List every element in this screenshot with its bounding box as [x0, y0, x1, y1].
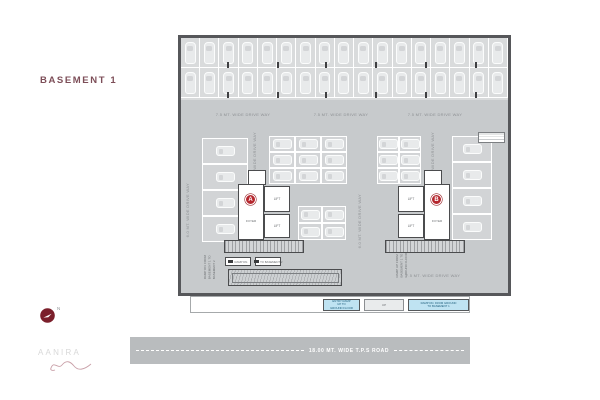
car-icon	[185, 72, 196, 94]
core-b-lift-1: LIFT	[398, 186, 424, 212]
aisle-tick	[325, 62, 327, 68]
ramp-down-strip	[228, 269, 342, 286]
north-arrow-icon	[40, 308, 55, 323]
aisle-tick	[325, 92, 327, 98]
aisle-tick	[425, 92, 427, 98]
car-icon	[338, 42, 349, 64]
core-a-foyer-label: FOYER	[238, 220, 264, 224]
aisle-tick	[475, 92, 477, 98]
car-icon	[396, 72, 407, 94]
page-title: BASEMENT 1	[40, 75, 117, 86]
brand-script-flourish-icon	[48, 358, 94, 372]
car-icon	[325, 210, 344, 220]
parking-row	[181, 38, 508, 68]
exit-ramp-box: RAMP DN. FROM GROUND TO BASEMENT 1	[408, 299, 469, 311]
car-icon	[401, 155, 420, 165]
core-b-foyer-label: FOYER	[424, 220, 450, 224]
car-icon	[435, 72, 446, 94]
car-icon	[463, 144, 482, 154]
ramp-tag: RAMP DN.	[225, 257, 251, 266]
north-label: N	[57, 306, 60, 311]
aisle-tick	[375, 92, 377, 98]
car-icon	[358, 42, 369, 64]
car-icon	[325, 155, 344, 165]
driveway-label: 7.5 MT. WIDE DRIVE WAY	[406, 273, 460, 278]
ramp-note-right: RAMP UP FROM BASEMENT 1 TO GROUND FLOOR	[395, 253, 409, 278]
core-b-foyer	[424, 184, 450, 240]
road-centerline	[394, 350, 464, 351]
parking-cluster	[298, 206, 346, 240]
ramp-mid-box: UP	[364, 299, 404, 311]
car-icon	[473, 72, 484, 94]
car-icon	[415, 72, 426, 94]
car-icon	[273, 139, 292, 149]
car-icon	[273, 171, 292, 181]
car-icon	[319, 42, 330, 64]
entry-apron: ENTRY RAMP UP TO GROUND FLOOR UP RAMP DN…	[190, 296, 470, 313]
car-icon	[492, 42, 503, 64]
parking-cluster	[269, 136, 347, 184]
car-icon	[301, 227, 320, 237]
core-a-vestibule	[248, 170, 266, 185]
core-a-foyer	[238, 184, 264, 240]
core-b-vestibule	[424, 170, 442, 185]
tps-road: 18.00 MT. WIDE T.P.S ROAD	[130, 337, 470, 364]
car-icon	[281, 72, 292, 94]
tower-b-marker: B	[431, 194, 442, 205]
core-a-stair	[224, 240, 304, 253]
car-icon	[223, 72, 234, 94]
brand-logo: AANIRA	[38, 348, 94, 372]
parking-cluster	[377, 136, 421, 184]
car-icon	[325, 139, 344, 149]
core-a-lift-1: LIFT	[264, 186, 290, 212]
car-icon	[435, 42, 446, 64]
driveway-label: 7.5 MT. WIDE DRIVE WAY	[216, 112, 270, 117]
north-indicator: N	[40, 308, 64, 326]
car-icon	[379, 155, 398, 165]
car-icon	[204, 42, 215, 64]
car-icon	[463, 196, 482, 206]
tower-a-marker: A	[245, 194, 256, 205]
aisle-tick	[425, 62, 427, 68]
car-icon	[377, 72, 388, 94]
core-a-lift-2: LIFT	[264, 214, 290, 238]
driveway-label: 7.5 MT. WIDE DRIVE WAY	[408, 112, 462, 117]
driveway-label: 7.5 MT. WIDE DRIVE WAY	[314, 112, 368, 117]
car-icon	[216, 198, 235, 208]
aisle-tick	[277, 62, 279, 68]
car-icon	[299, 139, 318, 149]
car-icon	[473, 42, 484, 64]
car-icon	[454, 42, 465, 64]
aisle-tick	[227, 92, 229, 98]
road-centerline	[136, 350, 304, 351]
brand-name: AANIRA	[38, 348, 94, 357]
car-icon	[262, 42, 273, 64]
car-icon	[185, 42, 196, 64]
car-icon	[242, 72, 253, 94]
car-icon	[300, 42, 311, 64]
floor-plan-sheet: BASEMENT 1 N AANIRA 7.5 MT. WIDE DRIVE W…	[0, 0, 600, 400]
car-icon	[299, 155, 318, 165]
car-icon	[377, 42, 388, 64]
car-icon	[415, 42, 426, 64]
car-icon	[273, 155, 292, 165]
car-icon	[379, 139, 398, 149]
aisle-tick	[375, 62, 377, 68]
car-icon	[401, 139, 420, 149]
car-icon	[325, 227, 344, 237]
car-icon	[281, 42, 292, 64]
car-icon	[379, 171, 398, 181]
ramp-tag: TO BASEMENT 2	[255, 257, 281, 266]
parking-cluster	[452, 136, 492, 240]
aisle-tick	[277, 92, 279, 98]
driveway-label: 6.0 MT. WIDE DRIVE WAY	[185, 183, 190, 237]
car-icon	[242, 42, 253, 64]
car-icon	[358, 72, 369, 94]
driveway-label: 6.0 MT. WIDE DRIVE WAY	[357, 194, 362, 248]
aisle-tick	[475, 62, 477, 68]
car-icon	[492, 72, 503, 94]
car-icon	[216, 224, 235, 234]
car-icon	[463, 222, 482, 232]
car-icon	[262, 72, 273, 94]
road-label: 18.00 MT. WIDE T.P.S ROAD	[304, 348, 394, 354]
ramp-note-left: RAMP DN. FROM BASEMENT 1 TO BASEMENT 2	[203, 255, 217, 279]
car-icon	[401, 171, 420, 181]
entry-ramp-box: ENTRY RAMP UP TO GROUND FLOOR	[323, 299, 360, 311]
basement-plan: 7.5 MT. WIDE DRIVE WAY 7.5 MT. WIDE DRIV…	[178, 35, 511, 296]
car-icon	[454, 72, 465, 94]
top-parking-band	[181, 38, 508, 100]
car-icon	[223, 42, 234, 64]
car-icon	[216, 172, 235, 182]
core-b-stair	[385, 240, 465, 253]
core-b-lift-2: LIFT	[398, 214, 424, 238]
aisle-tick	[227, 62, 229, 68]
parking-row	[181, 68, 508, 98]
utility-note-box	[478, 132, 505, 143]
car-icon	[319, 72, 330, 94]
car-icon	[396, 42, 407, 64]
car-icon	[338, 72, 349, 94]
car-icon	[204, 72, 215, 94]
car-icon	[301, 210, 320, 220]
car-icon	[300, 72, 311, 94]
car-icon	[299, 171, 318, 181]
car-icon	[325, 171, 344, 181]
car-icon	[463, 170, 482, 180]
car-icon	[216, 146, 235, 156]
